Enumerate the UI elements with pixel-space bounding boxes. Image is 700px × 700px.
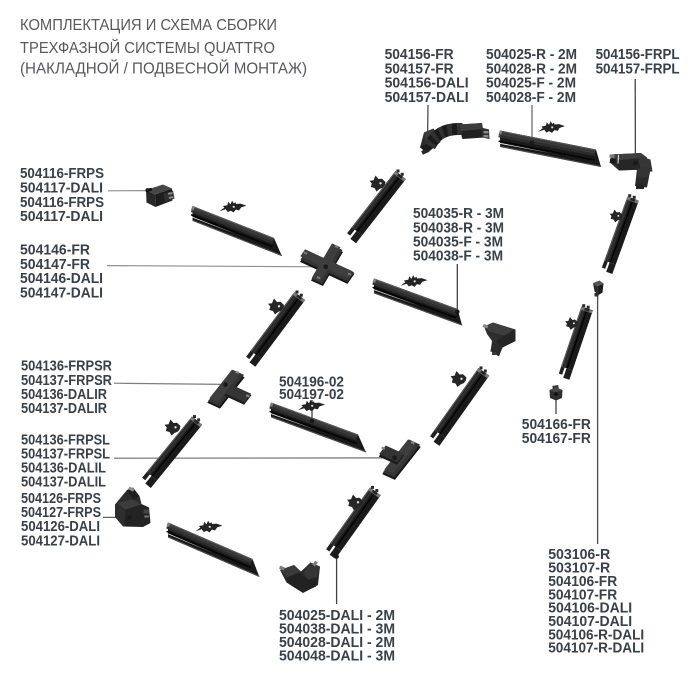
svg-text:504167-FR: 504167-FR: [522, 430, 591, 447]
svg-text:504157-FRPL: 504157-FRPL: [596, 60, 680, 77]
svg-text:504048-DALI - 3M: 504048-DALI - 3M: [279, 647, 395, 664]
svg-text:504147-DALI: 504147-DALI: [20, 285, 103, 302]
svg-text:504127-DALI: 504127-DALI: [21, 532, 100, 549]
svg-text:504028-F - 2M: 504028-F - 2M: [486, 89, 576, 106]
svg-text:504157-DALI: 504157-DALI: [385, 89, 469, 106]
svg-text:504197-02: 504197-02: [279, 386, 344, 403]
svg-text:504137-DALIL: 504137-DALIL: [21, 474, 106, 491]
svg-text:(НАКЛАДНОЙ / ПОДВЕСНОЙ МОНТАЖ): (НАКЛАДНОЙ / ПОДВЕСНОЙ МОНТАЖ): [20, 59, 307, 78]
svg-text:504107-R-DALI: 504107-R-DALI: [548, 640, 644, 657]
svg-text:504137-DALIR: 504137-DALIR: [21, 400, 107, 417]
svg-text:504038-F - 3M: 504038-F - 3M: [413, 248, 503, 265]
svg-text:КОМПЛЕКТАЦИЯ И СХЕМА СБОРКИ: КОМПЛЕКТАЦИЯ И СХЕМА СБОРКИ: [20, 17, 277, 34]
svg-text:ТРЕХФАЗНОЙ СИСТЕМЫ QUATTRO: ТРЕХФАЗНОЙ СИСТЕМЫ QUATTRO: [20, 38, 275, 57]
svg-text:504117-DALI: 504117-DALI: [20, 208, 103, 225]
